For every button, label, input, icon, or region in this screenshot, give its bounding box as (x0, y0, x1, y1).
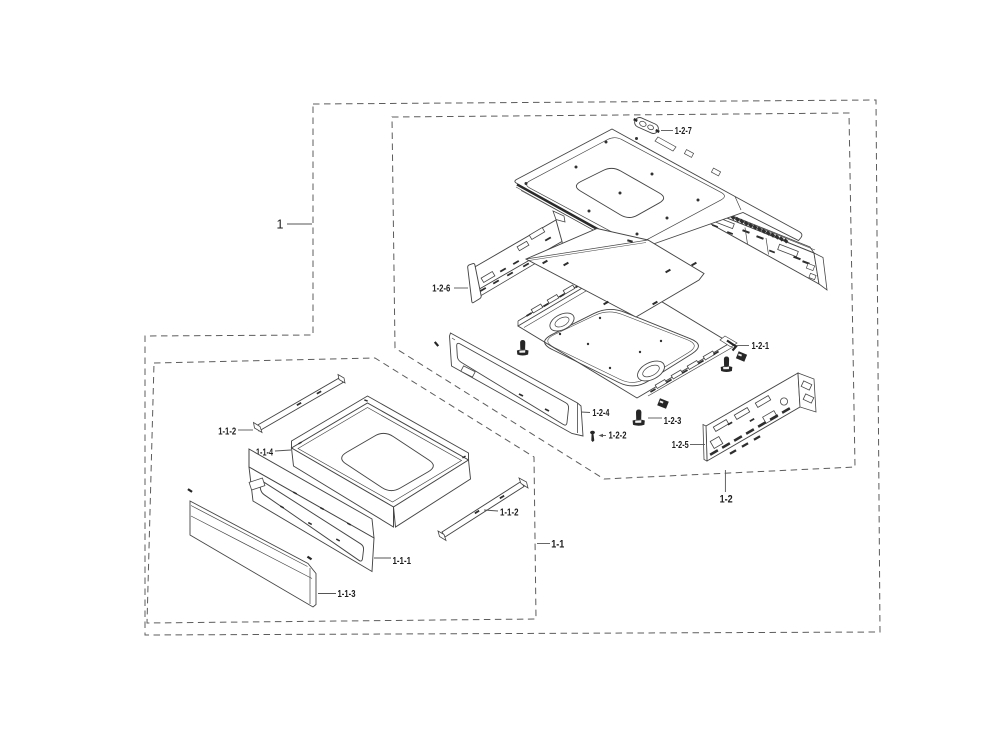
svg-text:1-1-2: 1-1-2 (218, 426, 236, 438)
svg-text:1: 1 (277, 218, 284, 232)
svg-text:1-1-3: 1-1-3 (338, 588, 356, 600)
svg-text:1-1-1: 1-1-1 (393, 555, 412, 567)
svg-text:1-2-2: 1-2-2 (609, 430, 627, 442)
svg-text:1-2-7: 1-2-7 (675, 125, 692, 137)
svg-text:1-2: 1-2 (720, 494, 733, 506)
svg-text:1-2-1: 1-2-1 (752, 340, 770, 352)
svg-text:1-2-4: 1-2-4 (592, 407, 609, 419)
svg-text:1-1: 1-1 (551, 539, 564, 551)
svg-text:1-1-2: 1-1-2 (500, 507, 519, 519)
svg-text:1-2-3: 1-2-3 (664, 415, 682, 427)
svg-text:1-2-6: 1-2-6 (432, 283, 450, 295)
svg-text:1-2-5: 1-2-5 (672, 439, 689, 451)
